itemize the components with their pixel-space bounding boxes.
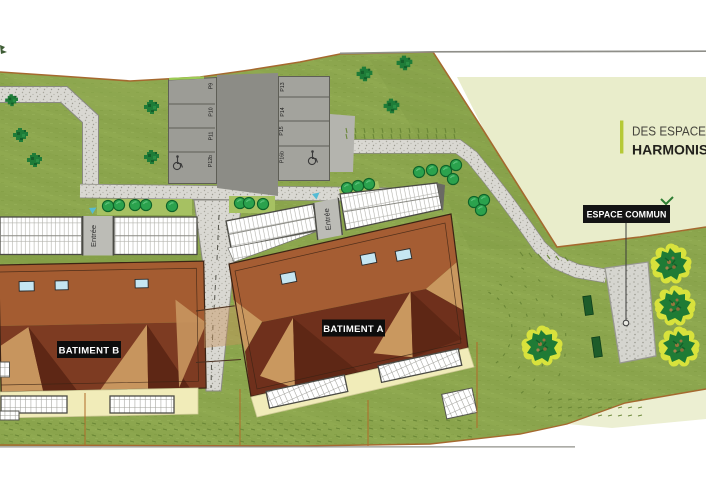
svg-text:P15: P15 — [279, 126, 285, 135]
svg-text:P16b: P16b — [280, 151, 286, 163]
svg-text:BATIMENT B: BATIMENT B — [59, 346, 120, 357]
svg-text:BATIMENT A: BATIMENT A — [323, 324, 384, 335]
svg-text:DES ESPACES VERTS: DES ESPACES VERTS — [632, 124, 706, 138]
svg-text:P14: P14 — [280, 107, 286, 116]
svg-text:HARMONISÉS PAYSAGERS: HARMONISÉS PAYSAGERS — [632, 142, 706, 158]
svg-text:Entrée: Entrée — [89, 225, 98, 247]
svg-text:P12b: P12b — [208, 155, 214, 167]
svg-text:P11: P11 — [209, 131, 215, 140]
svg-text:P9: P9 — [209, 83, 215, 89]
svg-text:P10: P10 — [209, 107, 215, 116]
svg-text:ESPACE COMMUN: ESPACE COMMUN — [587, 210, 667, 220]
svg-text:P13: P13 — [280, 82, 286, 91]
